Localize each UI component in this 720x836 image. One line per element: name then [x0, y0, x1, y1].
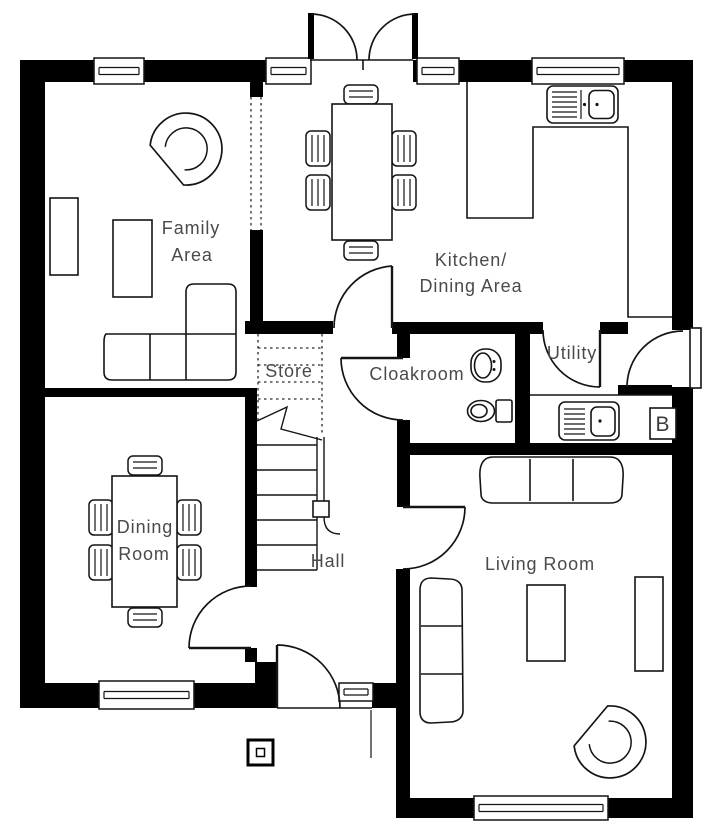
curved-chair [568, 698, 661, 792]
kitchen-sink [547, 86, 618, 123]
door-kitchen-lobby [334, 266, 392, 328]
door-utility-exterior [627, 328, 701, 388]
stair-treads [257, 445, 317, 570]
label-cloakroom: Cloakroom [369, 364, 464, 384]
corner-sofa [104, 284, 236, 380]
door-dining-room [189, 586, 251, 648]
dining-table [112, 476, 177, 607]
label-family-area-1: Family [162, 218, 220, 238]
label-kitchen-1: Kitchen/ [435, 250, 507, 270]
window-family-top [94, 58, 144, 84]
label-store: Store [265, 361, 313, 381]
floor-plan: B [0, 0, 720, 836]
handrail-curve [324, 517, 340, 534]
sofa-top [480, 457, 623, 503]
label-living-room: Living Room [485, 554, 595, 574]
window-kitchen [532, 58, 624, 84]
furniture-family-area [50, 98, 237, 380]
side-table [50, 198, 78, 275]
boiler-box: B [650, 408, 676, 439]
window-front-sidelight [339, 683, 373, 701]
coffee-table [527, 585, 565, 661]
door-living-room [403, 507, 465, 569]
floor-plan-drawing: B [0, 0, 720, 836]
porch [248, 710, 371, 765]
label-kitchen-2: Dining Area [420, 276, 523, 296]
dining-table [332, 104, 392, 240]
wash-basin [471, 349, 501, 382]
sideboard [635, 577, 663, 671]
label-dining-1: Dining [117, 517, 173, 537]
label-hall: Hall [311, 551, 346, 571]
stair-break-line [257, 407, 322, 440]
window-right-of-door [417, 58, 459, 84]
furniture-dining-room [89, 456, 201, 627]
store-under-stairs [258, 334, 322, 436]
boiler-label: B [655, 413, 669, 436]
sofa-left [420, 578, 463, 723]
window-living [474, 796, 608, 820]
french-doors [308, 13, 418, 70]
coffee-table [113, 220, 152, 297]
label-utility: Utility [547, 343, 597, 363]
window-dining [99, 681, 194, 709]
utility-sink [559, 402, 619, 440]
stair-newel-post [313, 501, 329, 517]
label-dining-2: Room [118, 544, 170, 564]
curved-chair [144, 98, 237, 192]
window-left-of-door [266, 58, 311, 84]
label-family-area-2: Area [171, 245, 213, 265]
toilet [468, 400, 513, 422]
kitchen-dining-table [306, 85, 416, 260]
open-plan-divider [251, 97, 261, 230]
